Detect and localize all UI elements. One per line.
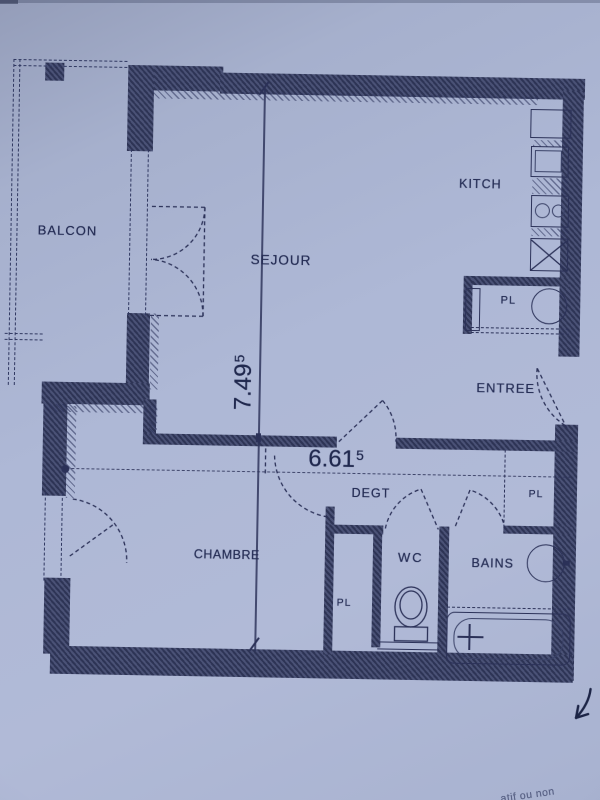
closet-label-kitchen-pl: PL: [495, 294, 521, 306]
room-label-bains: BAINS: [467, 556, 519, 571]
wall-segment: [396, 438, 578, 452]
door-leaf: [203, 207, 205, 316]
room-label-wc: WC: [391, 550, 431, 566]
wall-segment: [43, 578, 70, 654]
wall-hatching: [149, 405, 158, 435]
room-label-balcon: BALCON: [30, 222, 104, 238]
balcony-railing: [13, 59, 127, 68]
pen-arrow-mark: [576, 706, 578, 718]
closet-label-entree-pl: PL: [524, 488, 548, 500]
balcony-railing: [5, 333, 43, 341]
closet-dashed-front: [471, 327, 569, 335]
drainer-hatch: [532, 178, 568, 195]
counter-hatch: [531, 228, 568, 237]
floor-plan: 7.495 6.615 BALCON SEJOUR KITCH ENTREE D…: [0, 0, 600, 800]
floor-plan-photo: { "rooms": [ {"label": "BALCON"}, {"labe…: [0, 0, 600, 800]
toilet-tank: [394, 627, 427, 642]
wall-segment: [371, 525, 382, 647]
room-label-chambre: CHAMBRE: [187, 547, 267, 562]
dimension-vertical-value: 7.49: [229, 363, 257, 410]
wall-segment: [464, 276, 570, 287]
toilet-symbol: [395, 587, 428, 628]
wall-hatching: [150, 313, 159, 389]
wall-hatching: [66, 406, 77, 498]
wall-segment: [503, 526, 573, 535]
toilet-symbol: [400, 591, 422, 619]
door-arc: [382, 400, 397, 441]
washer-symbol: [530, 238, 569, 272]
closet-dashed-front: [503, 450, 505, 528]
chambre-window-frame: [43, 493, 63, 581]
room-label-degt: DEGT: [346, 486, 396, 501]
door-leaf: [536, 368, 568, 429]
door-arc: [72, 499, 128, 563]
door-leaf: [454, 490, 470, 529]
room-label-entree: ENTREE: [474, 380, 538, 396]
wall-segment: [41, 381, 149, 405]
door-leaf: [420, 489, 439, 529]
pen-arrow-mark: [576, 689, 591, 718]
dimension-vertical-sup: 5: [231, 355, 247, 363]
closet-label-chambre-pl: PL: [332, 597, 356, 609]
kitchen-sink-basin: [535, 150, 562, 172]
door-arc: [536, 368, 568, 427]
room-label-sejour: SEJOUR: [250, 252, 312, 268]
photo-corner-mark: [0, 0, 18, 4]
door-leaf: [152, 206, 205, 207]
pen-arrow-mark: [576, 714, 588, 718]
dimension-horizontal: 6.615: [296, 444, 374, 471]
wc-window: [377, 641, 439, 650]
dimension-horizontal-sup: 5: [356, 447, 364, 463]
closet-door-leaf: [465, 288, 481, 331]
wall-segment: [127, 65, 154, 151]
door-leaf: [339, 400, 383, 443]
dimension-tick: [256, 433, 261, 442]
door-leaf: [70, 523, 115, 557]
sejour-balcony-door-frame: [128, 149, 149, 315]
door-arc: [469, 490, 506, 530]
tap-icon: [563, 561, 570, 566]
photo-edge-shadow: [0, 0, 600, 3]
dimension-horizontal-value: 6.61: [308, 445, 355, 473]
fridge-symbol: [530, 109, 571, 139]
door-arc: [150, 259, 204, 316]
door-arc: [151, 206, 205, 260]
dimension-vertical: 7.495: [228, 337, 258, 429]
room-label-kitch: KITCH: [455, 177, 505, 192]
wall-segment: [126, 313, 150, 389]
